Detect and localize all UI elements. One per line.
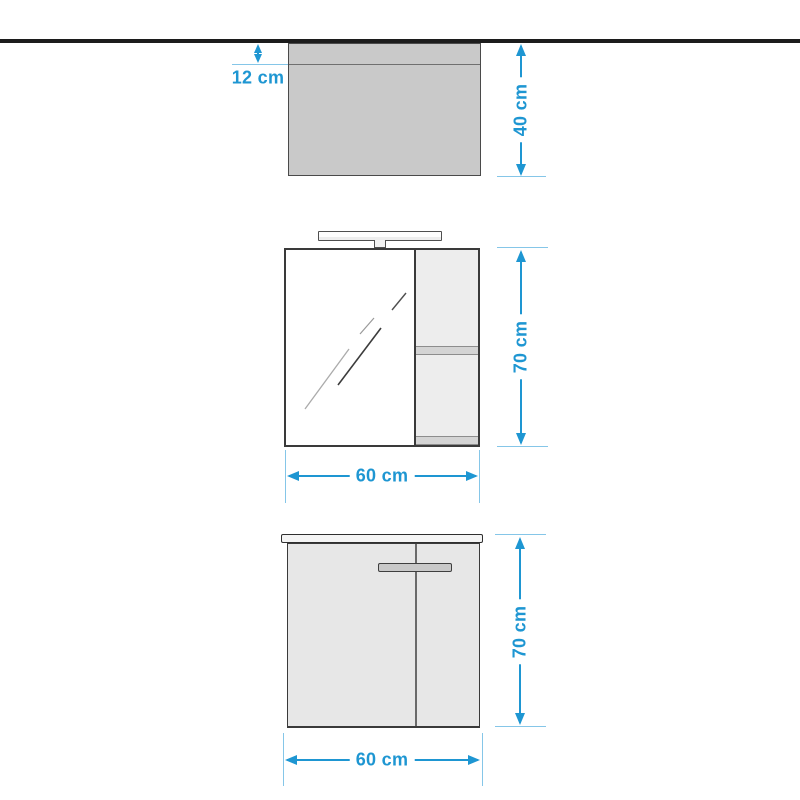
dim-label-base-width: 60 cm xyxy=(350,750,415,771)
dim-60a-extension-right xyxy=(479,450,480,503)
dim-label-mirror-height: 70 cm xyxy=(511,315,532,380)
dim-70a-extension-bottom xyxy=(497,446,548,447)
dim-60b-arrow-left-icon xyxy=(285,755,297,765)
top-panel-edge-line xyxy=(289,64,480,65)
dim-60a-arrow-left-icon xyxy=(287,471,299,481)
dim-label-mirror-width: 60 cm xyxy=(350,466,415,487)
dim-70a-arrow-down-icon xyxy=(516,433,526,445)
dim-40-arrow-down-icon xyxy=(516,164,526,176)
dim-40-extension-line xyxy=(497,176,546,177)
dim-40-arrow-up-icon xyxy=(516,44,526,56)
dim-label-12cm: 12 cm xyxy=(230,68,287,89)
dim-70b-arrow-up-icon xyxy=(515,537,525,549)
dim-70b-extension-bottom xyxy=(495,726,546,727)
shelf-edge-bottom xyxy=(416,436,478,445)
dim-60a-arrow-right-icon xyxy=(466,471,478,481)
dimension-diagram: 12 cm 40 cm 70 cm 60 cm xyxy=(0,0,800,800)
dim-12-extension-line xyxy=(232,64,288,65)
top-panel xyxy=(288,43,481,176)
dim-60b-arrow-right-icon xyxy=(468,755,480,765)
dim-70b-extension-top xyxy=(495,534,546,535)
mirror-reflection-lines xyxy=(286,250,416,445)
mirror-cabinet xyxy=(284,248,480,447)
side-shelf-panel xyxy=(414,250,478,445)
dim-70a-extension-top xyxy=(497,247,548,248)
dim-60b-extension-right xyxy=(482,733,483,786)
dim-70b-arrow-down-icon xyxy=(515,713,525,725)
dim-60a-extension-left xyxy=(285,450,286,503)
dim-label-base-height: 70 cm xyxy=(510,600,531,665)
dim-label-40cm: 40 cm xyxy=(511,78,532,143)
door-handle xyxy=(378,563,452,572)
dim-12-arrow-down-icon xyxy=(254,54,262,63)
light-fixture-mount xyxy=(374,240,386,248)
shelf-edge-middle xyxy=(416,346,478,355)
dim-60b-extension-left xyxy=(283,733,284,786)
countertop xyxy=(281,534,483,543)
dim-70a-arrow-up-icon xyxy=(516,250,526,262)
